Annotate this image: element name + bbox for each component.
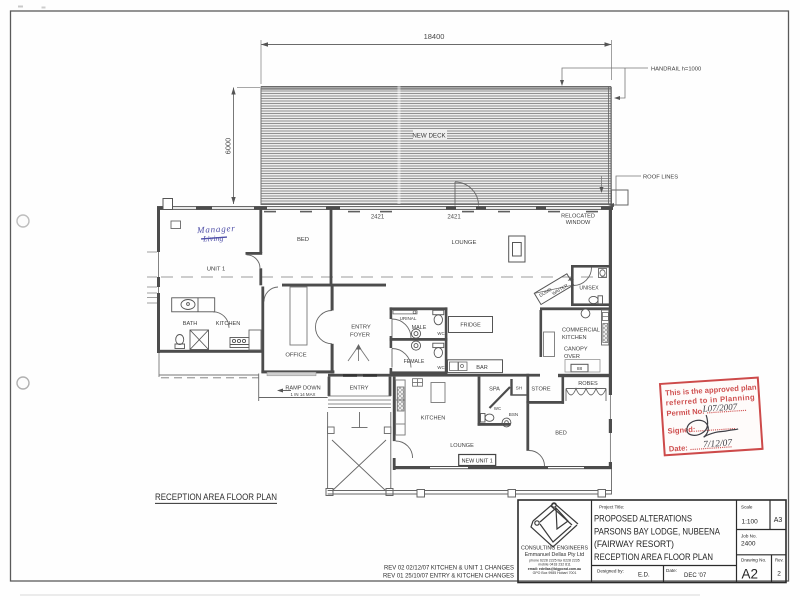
svg-text:1 IN 14 MAX: 1 IN 14 MAX [291, 392, 316, 397]
svg-text:FOYER: FOYER [350, 333, 370, 339]
svg-text:BSN: BSN [509, 412, 518, 417]
svg-text:RELOCATED: RELOCATED [561, 213, 595, 219]
svg-text:BED: BED [555, 431, 567, 437]
svg-text:FRIDGE: FRIDGE [460, 323, 481, 329]
svg-text:LOUNGE: LOUNGE [452, 240, 477, 246]
svg-text:ROOF LINES: ROOF LINES [643, 175, 678, 181]
svg-text:OFFICE: OFFICE [285, 353, 306, 359]
svg-text:CONSULTING ENGINEERS: CONSULTING ENGINEERS [521, 546, 588, 552]
svg-text:STORE: STORE [531, 387, 550, 393]
svg-text:SPA: SPA [489, 387, 500, 393]
svg-text:HANDRAIL h=1000: HANDRAIL h=1000 [651, 67, 701, 73]
svg-text:REV 02 02/12/07 KITCHEN & UN: REV 02 02/12/07 KITCHEN & UNIT 1 CHANGES [384, 565, 514, 572]
svg-text:BED: BED [297, 237, 309, 243]
svg-text:WC: WC [494, 406, 501, 411]
svg-text:BAR: BAR [476, 365, 488, 371]
svg-text:PARSONS BAY LODGE, NUBEENA: PARSONS BAY LODGE, NUBEENA [594, 527, 720, 537]
svg-text:LOUNGE: LOUNGE [450, 443, 474, 449]
svg-text:Date:: Date: [666, 568, 677, 573]
svg-text:WC: WC [437, 365, 444, 370]
svg-text:KITCHEN: KITCHEN [216, 321, 241, 327]
svg-text:Project Title:: Project Title: [599, 505, 624, 510]
svg-text:RECEPTION AREA FLOOR PLAN: RECEPTION AREA FLOOR PLAN [155, 492, 277, 502]
svg-text:KITCHEN: KITCHEN [562, 335, 587, 341]
svg-text:ENTRY: ENTRY [350, 386, 369, 392]
svg-text:2421: 2421 [447, 214, 461, 220]
svg-text:RECEPTION AREA FLOOR PLAN: RECEPTION AREA FLOOR PLAN [594, 552, 713, 562]
svg-text:NEW UNIT 1: NEW UNIT 1 [462, 459, 493, 465]
svg-text:BATH: BATH [183, 321, 198, 327]
svg-text:Rev.: Rev. [775, 558, 784, 563]
svg-text:WINDOW: WINDOW [566, 220, 591, 226]
svg-text:NEW DECK: NEW DECK [412, 132, 446, 139]
svg-text:URINAL: URINAL [400, 316, 417, 321]
svg-text:SH: SH [516, 386, 522, 391]
svg-text:Emmanuel Dellas Pty Ltd: Emmanuel Dellas Pty Ltd [525, 552, 585, 558]
svg-text:UNISEX: UNISEX [579, 286, 599, 292]
svg-text:CANOPY: CANOPY [564, 347, 588, 353]
svg-text:GPO Box 9985 Hobart 7001: GPO Box 9985 Hobart 7001 [533, 571, 577, 575]
svg-text:WC: WC [437, 331, 444, 336]
svg-text:2: 2 [777, 571, 781, 578]
svg-text:A2: A2 [742, 567, 759, 582]
svg-text:1:100: 1:100 [742, 519, 759, 526]
svg-text:A3: A3 [774, 517, 783, 524]
svg-text:PROPOSED ALTERATIONS: PROPOSED ALTERATIONS [594, 514, 692, 524]
svg-text:2421: 2421 [371, 214, 385, 220]
svg-text:7/12/07: 7/12/07 [703, 438, 734, 450]
svg-text:6000: 6000 [224, 138, 233, 155]
svg-text:OVER: OVER [564, 354, 580, 360]
svg-text:88: 88 [577, 366, 583, 372]
svg-text:Scale: Scale [741, 505, 753, 510]
svg-text:ENTRY: ENTRY [351, 325, 371, 331]
svg-text:KITCHEN: KITCHEN [421, 416, 446, 422]
svg-text:Designed by:: Designed by: [597, 569, 624, 574]
svg-text:Drawing No.: Drawing No. [741, 558, 766, 563]
svg-text:Job No.: Job No. [741, 534, 757, 539]
svg-text:COMMERCIAL: COMMERCIAL [562, 328, 600, 334]
svg-text:FEMALE: FEMALE [404, 359, 425, 365]
svg-text:2400: 2400 [741, 541, 756, 548]
svg-text:UNIT 1: UNIT 1 [207, 267, 226, 273]
svg-text:E.D.: E.D. [638, 573, 650, 579]
svg-text:ROBES: ROBES [578, 381, 598, 387]
svg-text:REV 01 25/10/07 ENTRY & KITC: REV 01 25/10/07 ENTRY & KITCHEN CHANGES [383, 573, 514, 580]
svg-text:DEC '07: DEC '07 [684, 573, 707, 579]
svg-text:(FAIRWAY RESORT): (FAIRWAY RESORT) [594, 539, 674, 549]
svg-text:18400: 18400 [424, 32, 445, 41]
